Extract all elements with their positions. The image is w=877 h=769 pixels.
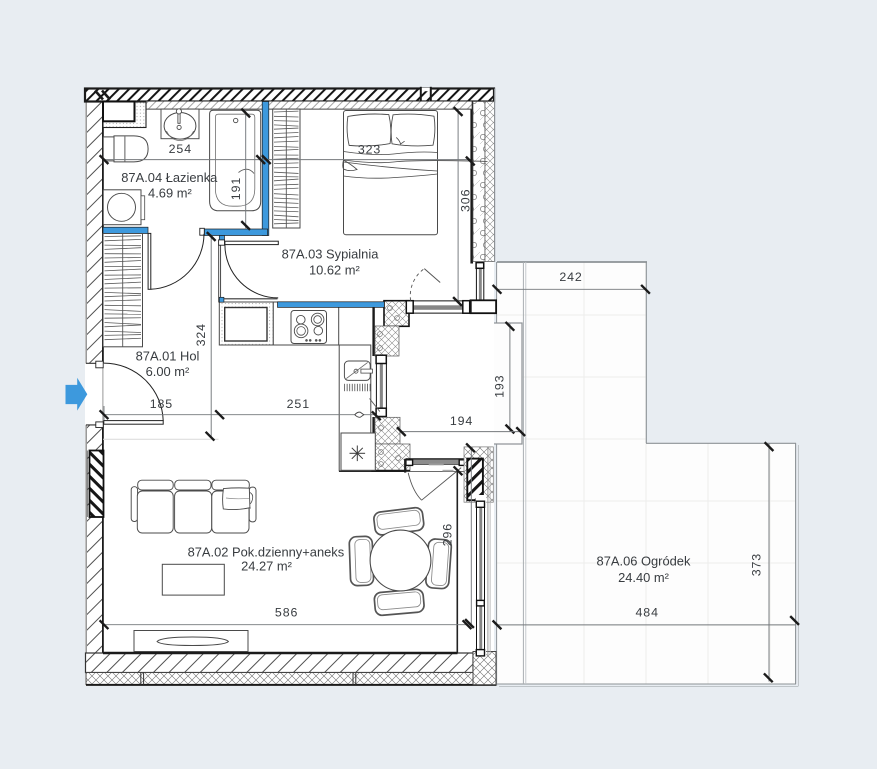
svg-text:6.00 m²: 6.00 m² [146, 364, 190, 379]
svg-text:306: 306 [459, 189, 473, 212]
svg-text:324: 324 [194, 323, 208, 346]
svg-text:24.27 m²: 24.27 m² [241, 559, 293, 574]
svg-text:24.40 m²: 24.40 m² [618, 570, 670, 585]
svg-text:194: 194 [450, 414, 473, 428]
svg-text:87A.06 Ogródek: 87A.06 Ogródek [597, 553, 691, 568]
svg-text:254: 254 [169, 142, 192, 156]
svg-text:373: 373 [750, 553, 764, 576]
svg-text:323: 323 [358, 143, 381, 157]
svg-text:185: 185 [150, 397, 173, 411]
svg-text:296: 296 [440, 523, 454, 546]
svg-text:87A.02 Pok.dzienny+aneks: 87A.02 Pok.dzienny+aneks [188, 545, 345, 560]
svg-text:242: 242 [559, 270, 582, 284]
svg-text:251: 251 [287, 397, 310, 411]
svg-text:193: 193 [492, 375, 506, 398]
svg-text:586: 586 [275, 605, 298, 619]
svg-text:10.62 m²: 10.62 m² [309, 262, 361, 277]
svg-text:87A.01 Hol: 87A.01 Hol [136, 348, 200, 363]
svg-text:87A.03 Sypialnia: 87A.03 Sypialnia [282, 246, 380, 261]
svg-text:191: 191 [229, 177, 243, 200]
svg-text:87A.04 Łazienka: 87A.04 Łazienka [121, 170, 218, 185]
svg-text:484: 484 [636, 605, 659, 619]
svg-text:4.69 m²: 4.69 m² [148, 186, 192, 201]
